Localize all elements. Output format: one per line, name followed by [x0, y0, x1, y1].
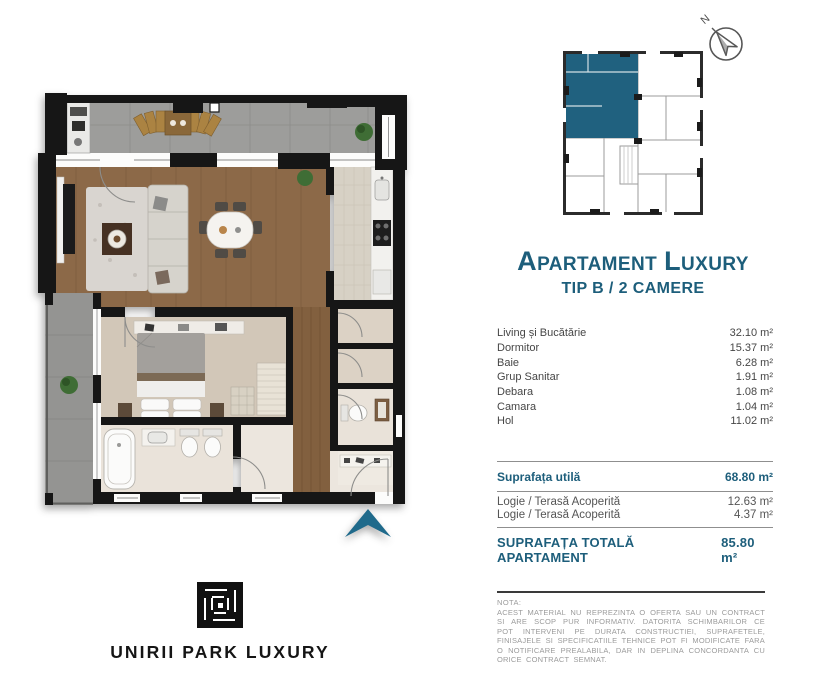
loggia-value: 4.37 m²: [734, 509, 773, 522]
room-row: Hol 11.02 m²: [497, 414, 773, 429]
total-area-row: SUPRAFAȚA TOTALĂ APARTAMENT 85.80 m²: [497, 528, 773, 565]
room-label: Living și Bucătărie: [497, 327, 586, 339]
note-heading: NOTA:: [497, 598, 765, 607]
usable-area-label: Suprafața utilă: [497, 470, 580, 484]
loggia-label: Logie / Terasă Acoperită: [497, 496, 620, 509]
loggia-row: Logie / Terasă Acoperită 12.63 m²: [497, 496, 773, 509]
room-area: 11.02 m²: [730, 415, 773, 427]
title-block: APARTAMENTLUXURY TIP B / 2 CAMERE: [487, 248, 779, 298]
title-initial: L: [664, 246, 681, 276]
disclaimer-note: NOTA: ACEST MATERIAL NU REPREZINTA O OFE…: [497, 591, 765, 664]
room-row: Camara 1.04 m²: [497, 399, 773, 414]
logo-mark-icon: [197, 582, 243, 628]
terrace-table: [165, 111, 191, 135]
totals-table: Suprafața utilă 68.80 m² Logie / Terasă …: [497, 461, 773, 565]
loggia-value: 12.63 m²: [728, 496, 773, 509]
floor-plan-drawing: [30, 85, 422, 547]
room-row: Grup Sanitar 1.91 m²: [497, 370, 773, 385]
plant: [355, 123, 373, 141]
room-row: Debara 1.08 m²: [497, 385, 773, 400]
plant: [60, 376, 78, 394]
toilet: [341, 405, 367, 421]
loggia-label: Logie / Terasă Acoperită: [497, 509, 620, 522]
plant: [297, 170, 313, 186]
vestibule-floor: [241, 425, 293, 492]
room-area: 32.10 m²: [730, 327, 773, 339]
loggia-row: Logie / Terasă Acoperită 4.37 m²: [497, 509, 773, 522]
toilet: [180, 429, 199, 457]
room-area: 1.04 m²: [736, 401, 773, 413]
room-row: Dormitor 15.37 m²: [497, 341, 773, 356]
highlighted-unit: [566, 54, 638, 138]
room-label: Baie: [497, 357, 519, 369]
north-label: N: [699, 13, 713, 27]
loggia-rows: Logie / Terasă Acoperită 12.63 m² Logie …: [497, 492, 773, 528]
kitchen-sink: [375, 180, 389, 200]
hall-floor: [293, 307, 330, 492]
toilet: [203, 429, 222, 457]
room-label: Debara: [497, 386, 533, 398]
total-area-value: 85.80 m²: [721, 535, 773, 565]
dining-table: [207, 212, 253, 248]
room-area: 1.91 m²: [736, 371, 773, 383]
total-area-label: SUPRAFAȚA TOTALĂ APARTAMENT: [497, 535, 721, 565]
room-area-list: Living și Bucătărie 32.10 m² Dormitor 15…: [497, 326, 773, 429]
nightstand: [118, 403, 132, 417]
room-label: Camara: [497, 401, 536, 413]
room-label: Grup Sanitar: [497, 371, 559, 383]
page-subtitle: TIP B / 2 CAMERE: [487, 280, 779, 298]
title-initial: A: [517, 246, 537, 276]
room-label: Dormitor: [497, 342, 539, 354]
wardrobe: [257, 363, 286, 415]
usable-area-row: Suprafața utilă 68.80 m²: [497, 462, 773, 492]
room-label: Hol: [497, 415, 514, 427]
building-key-plan: [562, 50, 704, 220]
entrance-arrow-icon: [345, 509, 391, 537]
brochure-page: N APARTAMENTLUXURY TIP B / 2 CAMERE Livi…: [0, 0, 824, 699]
cooktop: [373, 220, 391, 246]
balcony-floor: [45, 293, 93, 505]
note-body: ACEST MATERIAL NU REPREZINTA O OFERTA SA…: [497, 608, 765, 664]
room-area: 6.28 m²: [736, 357, 773, 369]
logo-text: UNIRII PARK LUXURY: [95, 642, 345, 663]
shoe-rack: [231, 387, 254, 415]
room-row: Living și Bucătărie 32.10 m²: [497, 326, 773, 341]
room-area: 15.37 m²: [730, 342, 773, 354]
tv-unit: [63, 184, 75, 254]
floor-plan: [30, 85, 422, 547]
room-area: 1.08 m²: [736, 386, 773, 398]
room-row: Baie 6.28 m²: [497, 355, 773, 370]
north-compass-icon: N: [694, 8, 752, 68]
page-title: APARTAMENTLUXURY: [487, 248, 779, 278]
nightstand: [210, 403, 224, 417]
usable-area-value: 68.80 m²: [725, 470, 773, 484]
brand-logo: UNIRII PARK LUXURY: [95, 582, 345, 663]
